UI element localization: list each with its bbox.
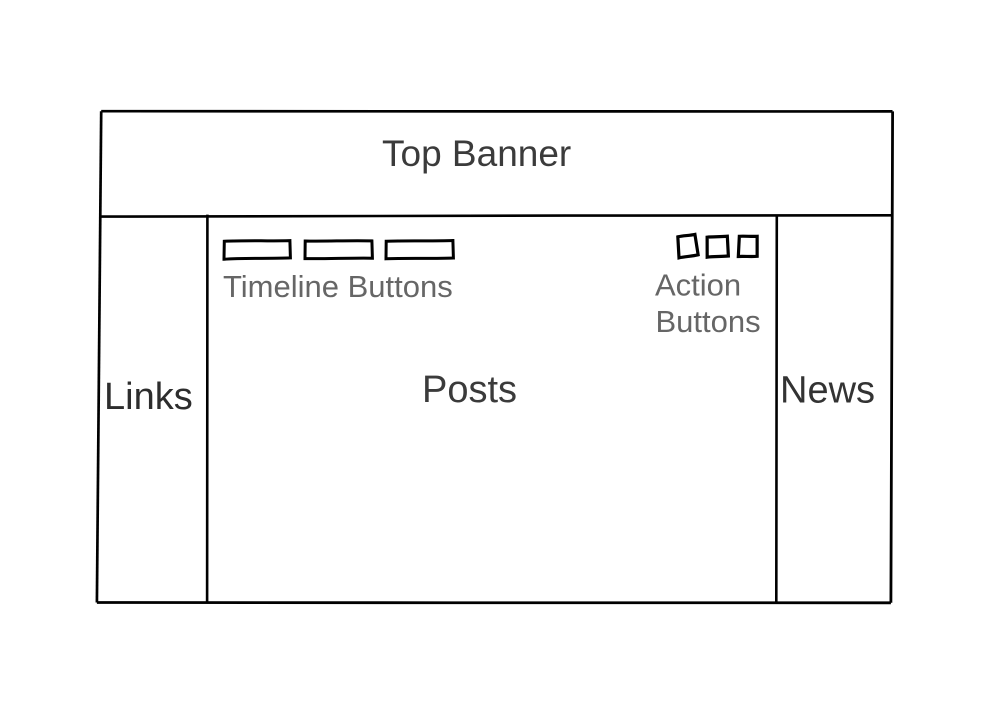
svg-text:Links: Links — [104, 376, 193, 418]
svg-text:Top Banner: Top Banner — [382, 133, 571, 174]
svg-text:Posts: Posts — [422, 369, 517, 411]
svg-text:Timeline Buttons: Timeline Buttons — [223, 269, 453, 304]
svg-text:Buttons: Buttons — [656, 304, 761, 339]
svg-text:News: News — [780, 369, 875, 411]
svg-text:Action: Action — [655, 268, 741, 303]
